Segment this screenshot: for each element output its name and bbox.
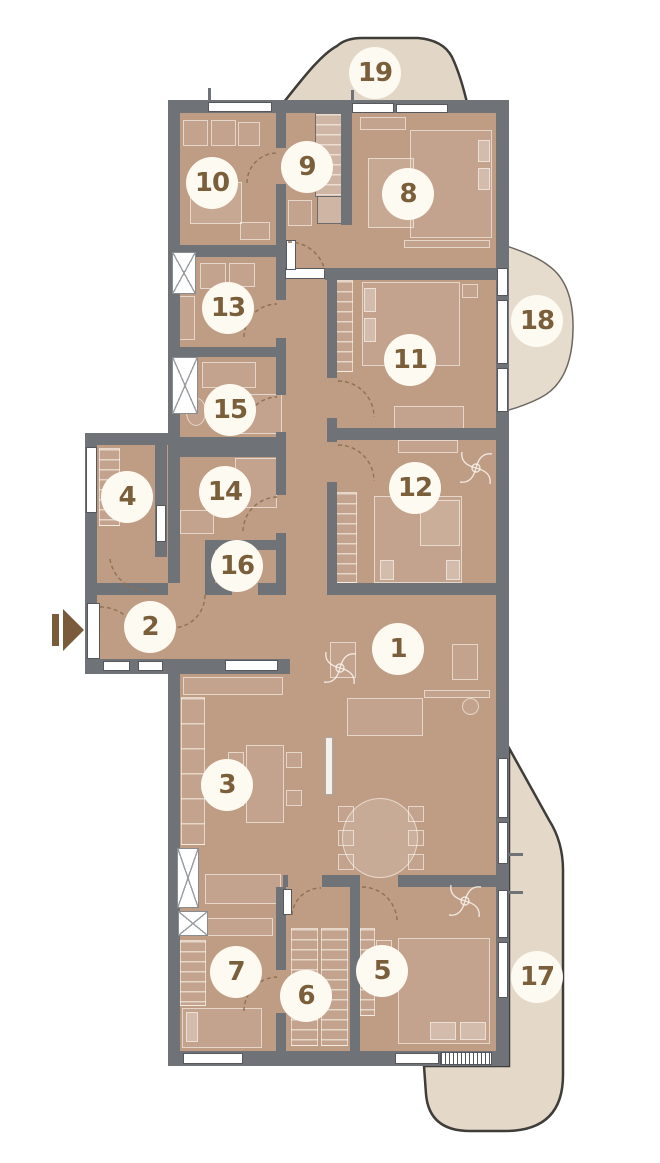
room-number-19: 19 bbox=[349, 47, 401, 99]
room-number-label: 4 bbox=[118, 482, 135, 512]
room-number-label: 14 bbox=[208, 477, 242, 507]
room-number-label: 10 bbox=[195, 168, 229, 198]
room-number-3: 3 bbox=[201, 759, 253, 811]
room-number-15: 15 bbox=[204, 384, 256, 436]
room-number-label: 6 bbox=[297, 981, 314, 1011]
room-number-label: 12 bbox=[398, 473, 432, 503]
room-number-5: 5 bbox=[356, 945, 408, 997]
room-number-label: 9 bbox=[298, 152, 315, 182]
room-number-8: 8 bbox=[382, 168, 434, 220]
room-number-label: 5 bbox=[373, 956, 390, 986]
room-number-label: 19 bbox=[358, 58, 392, 88]
room-number-6: 6 bbox=[280, 970, 332, 1022]
room-number-label: 11 bbox=[393, 345, 427, 375]
room-number-label: 18 bbox=[520, 306, 554, 336]
room-number-13: 13 bbox=[202, 282, 254, 334]
room-number-7: 7 bbox=[210, 946, 262, 998]
room-number-label: 17 bbox=[520, 962, 554, 992]
room-number-label: 3 bbox=[218, 770, 235, 800]
room-number-2: 2 bbox=[124, 601, 176, 653]
floor-plan: 12345678910111213141516171819 bbox=[0, 0, 660, 1163]
room-number-1: 1 bbox=[372, 623, 424, 675]
room-number-label: 1 bbox=[389, 634, 406, 664]
room-number-circles: 12345678910111213141516171819 bbox=[0, 0, 660, 1163]
room-number-18: 18 bbox=[511, 295, 563, 347]
room-number-9: 9 bbox=[281, 141, 333, 193]
room-number-11: 11 bbox=[384, 334, 436, 386]
room-number-16: 16 bbox=[211, 540, 263, 592]
room-number-4: 4 bbox=[101, 471, 153, 523]
room-number-label: 2 bbox=[141, 612, 158, 642]
room-number-14: 14 bbox=[199, 466, 251, 518]
room-number-label: 7 bbox=[227, 957, 244, 987]
room-number-10: 10 bbox=[186, 157, 238, 209]
room-number-label: 15 bbox=[213, 395, 247, 425]
room-number-label: 13 bbox=[211, 293, 245, 323]
room-number-label: 16 bbox=[220, 551, 254, 581]
room-number-17: 17 bbox=[511, 951, 563, 1003]
room-number-12: 12 bbox=[389, 462, 441, 514]
room-number-label: 8 bbox=[399, 179, 416, 209]
